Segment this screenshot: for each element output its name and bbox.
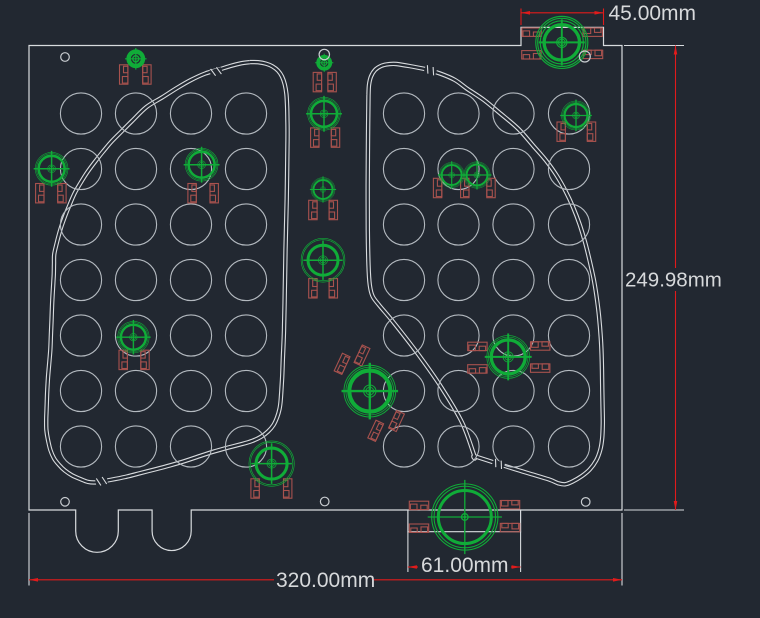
svg-text:320.00mm: 320.00mm [276, 569, 375, 592]
svg-text:61.00mm: 61.00mm [421, 554, 509, 577]
svg-text:249.98mm: 249.98mm [625, 269, 722, 292]
svg-text:45.00mm: 45.00mm [609, 2, 697, 25]
